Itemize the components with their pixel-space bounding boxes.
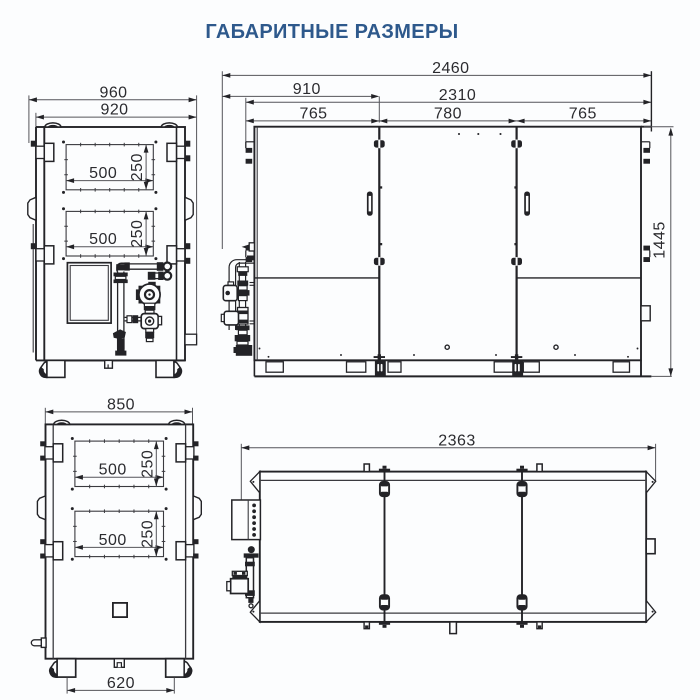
svg-text:250: 250 (129, 220, 146, 248)
svg-text:500: 500 (99, 532, 127, 549)
svg-text:2310: 2310 (439, 87, 476, 104)
svg-text:920: 920 (100, 102, 128, 119)
svg-text:850: 850 (107, 397, 135, 414)
svg-text:765: 765 (299, 106, 327, 123)
svg-text:2460: 2460 (432, 60, 469, 77)
svg-text:765: 765 (569, 106, 597, 123)
svg-text:1445: 1445 (651, 221, 668, 258)
svg-text:620: 620 (107, 675, 135, 692)
svg-text:780: 780 (434, 106, 462, 123)
svg-text:ГАБАРИТНЫЕ РАЗМЕРЫ: ГАБАРИТНЫЕ РАЗМЕРЫ (205, 21, 458, 43)
svg-text:2363: 2363 (438, 432, 475, 449)
svg-text:910: 910 (293, 81, 321, 98)
svg-text:500: 500 (89, 165, 117, 182)
svg-text:960: 960 (99, 84, 127, 101)
svg-text:500: 500 (89, 231, 117, 248)
svg-text:250: 250 (139, 520, 156, 548)
svg-text:250: 250 (129, 153, 146, 181)
svg-text:250: 250 (139, 450, 156, 478)
svg-text:500: 500 (99, 462, 127, 479)
